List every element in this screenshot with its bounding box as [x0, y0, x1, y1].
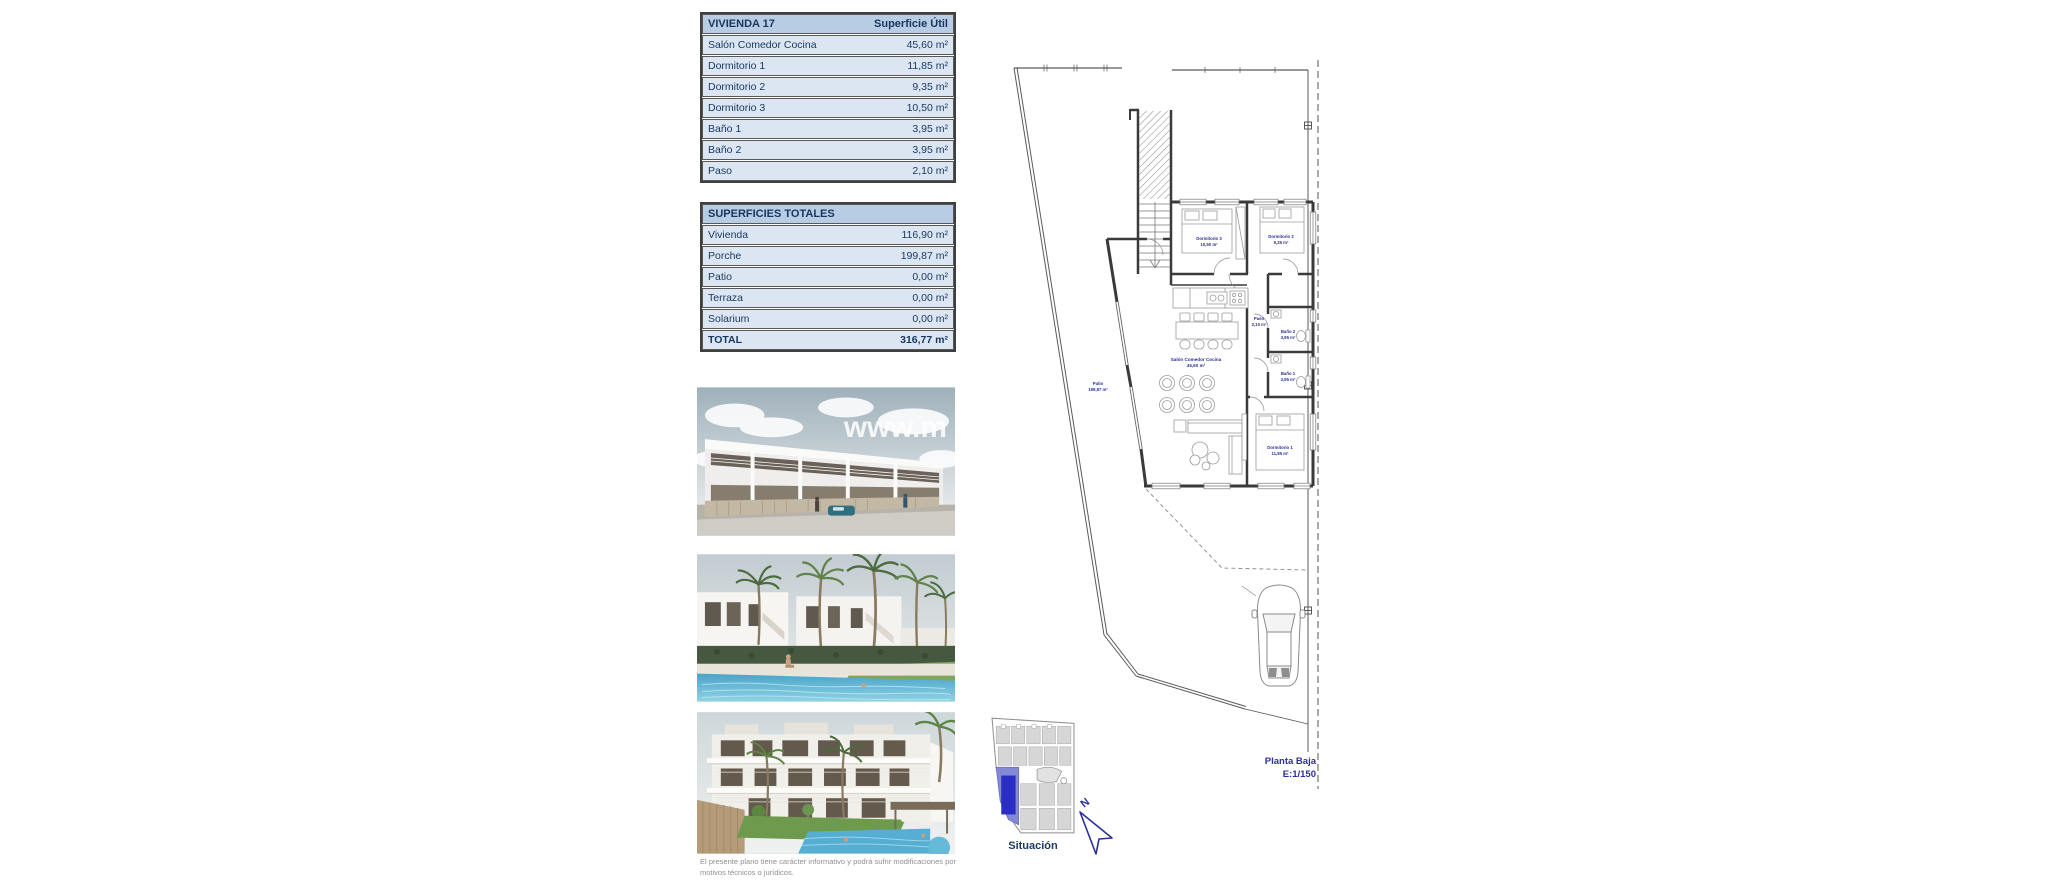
- table-header-right: Superficie Útil: [874, 18, 948, 30]
- table-row: Baño 13,95 m²: [702, 119, 954, 139]
- row-label: Salón Comedor Cocina: [708, 39, 817, 51]
- row-value: 3,95 m²: [912, 123, 948, 135]
- row-value: 3,95 m²: [912, 144, 948, 156]
- row-label: Dormitorio 1: [708, 60, 765, 72]
- street-car: [828, 506, 855, 516]
- hedge: [697, 646, 955, 666]
- row-value: 9,35 m²: [912, 81, 948, 93]
- room-label-bano2: Baño 2: [1281, 329, 1296, 334]
- table-total-row: TOTAL316,77 m²: [702, 330, 954, 350]
- floor-plan-graphic: Dormitorio 3 10,50 m² Dormitorio 2 9,35 …: [1000, 52, 1340, 797]
- table-title: SUPERFICIES TOTALES: [708, 208, 835, 220]
- render-photo-apartments: [697, 712, 955, 854]
- row-value: 45,60 m²: [907, 39, 948, 51]
- row-label: Paso: [708, 165, 732, 177]
- row-label: Baño 1: [708, 123, 741, 135]
- floor-plan: Dormitorio 3 10,50 m² Dormitorio 2 9,35 …: [1000, 52, 1340, 802]
- room-label-bano1: Baño 1: [1281, 371, 1296, 376]
- table-row: Baño 23,95 m²: [702, 140, 954, 160]
- table-row: Dormitorio 111,85 m²: [702, 56, 954, 76]
- row-value: 11,85 m²: [907, 60, 948, 72]
- table-row: Porche199,87 m²: [702, 246, 954, 266]
- plan-scale: E:1/150: [1283, 769, 1316, 780]
- room-label-paso: Paso: [1254, 316, 1265, 321]
- car-top-view: [1242, 585, 1305, 686]
- table-title: VIVIENDA 17: [708, 18, 775, 30]
- brochure-page: { "vivienda_table": { "header": {"left":…: [0, 0, 2048, 880]
- row-label: Baño 2: [708, 144, 741, 156]
- table-row: Salón Comedor Cocina45,60 m²: [702, 35, 954, 55]
- swimmer: [862, 683, 866, 687]
- table-header-row: VIVIENDA 17 Superficie Útil: [702, 14, 954, 34]
- row-label: Patio: [708, 271, 732, 283]
- photo-pool-graphic: [697, 554, 955, 702]
- main-pool: [798, 829, 930, 854]
- row-value: 0,00 m²: [912, 313, 948, 325]
- room-area-dormitorio3: 10,50 m²: [1200, 242, 1218, 247]
- row-label: Dormitorio 3: [708, 102, 765, 114]
- room-area-bano1: 3,95 m²: [1281, 377, 1296, 382]
- render-photo-pool: [697, 554, 955, 702]
- row-label: Dormitorio 2: [708, 81, 765, 93]
- table-row: Dormitorio 29,35 m²: [702, 77, 954, 97]
- table-row: Vivienda116,90 m²: [702, 225, 954, 245]
- table-row: Terraza0,00 m²: [702, 288, 954, 308]
- table-row: Dormitorio 310,50 m²: [702, 98, 954, 118]
- room-label-dormitorio2: Dormitorio 2: [1268, 234, 1294, 239]
- row-value: 2,10 m²: [912, 165, 948, 177]
- table-header-row: SUPERFICIES TOTALES: [702, 204, 954, 224]
- porch-dashed-line: [1146, 489, 1308, 570]
- row-label: Vivienda: [708, 229, 748, 241]
- swimmer: [921, 834, 925, 838]
- room-area-dormitorio2: 9,35 m²: [1274, 240, 1289, 245]
- plan-title: Planta Baja: [1265, 756, 1317, 767]
- room-label-patio: Patio: [1093, 381, 1104, 386]
- staircase: [1130, 109, 1171, 285]
- table-row: Solarium0,00 m²: [702, 309, 954, 329]
- row-value: 0,00 m²: [912, 292, 948, 304]
- room-area-paso: 2,10 m²: [1252, 322, 1267, 327]
- furniture: [1160, 207, 1311, 474]
- room-area-patio: 199,87 m²: [1088, 387, 1108, 392]
- row-label: Porche: [708, 250, 741, 262]
- row-value: 0,00 m²: [912, 271, 948, 283]
- table-row: Patio0,00 m²: [702, 267, 954, 287]
- row-value: 10,50 m²: [907, 102, 948, 114]
- table-row: Paso2,10 m²: [702, 161, 954, 181]
- swimmer: [844, 837, 848, 841]
- room-label-dormitorio1: Dormitorio 1: [1267, 445, 1293, 450]
- disclaimer-text: El presente plano tiene carácter informa…: [700, 857, 956, 878]
- photo-watermark: www.m: [843, 411, 947, 444]
- row-label: Terraza: [708, 292, 743, 304]
- plan-title-block: Planta Baja E:1/150: [1265, 756, 1317, 780]
- room-area-bano2: 3,95 m²: [1281, 335, 1296, 340]
- row-value: 316,77 m²: [900, 334, 948, 346]
- row-value: 116,90 m²: [902, 229, 949, 241]
- row-value: 199,87 m²: [901, 250, 948, 262]
- photo-townhouses-graphic: www.m: [697, 387, 955, 536]
- totals-table: SUPERFICIES TOTALES Vivienda116,90 m² Po…: [700, 202, 956, 352]
- row-label: Solarium: [708, 313, 749, 325]
- room-area-dormitorio1: 11,85 m²: [1272, 451, 1290, 456]
- room-label-salon: Salón Comedor Cocina: [1171, 357, 1222, 362]
- photo-apartments-graphic: [697, 712, 955, 854]
- room-area-salon: 45,60 m²: [1187, 363, 1206, 368]
- room-label-dormitorio3: Dormitorio 3: [1196, 236, 1222, 241]
- vivienda-surface-table: VIVIENDA 17 Superficie Útil Salón Comedo…: [700, 12, 956, 183]
- pool-deck: [697, 664, 955, 676]
- render-photo-townhouses: www.m: [697, 387, 955, 536]
- row-label: TOTAL: [708, 334, 742, 346]
